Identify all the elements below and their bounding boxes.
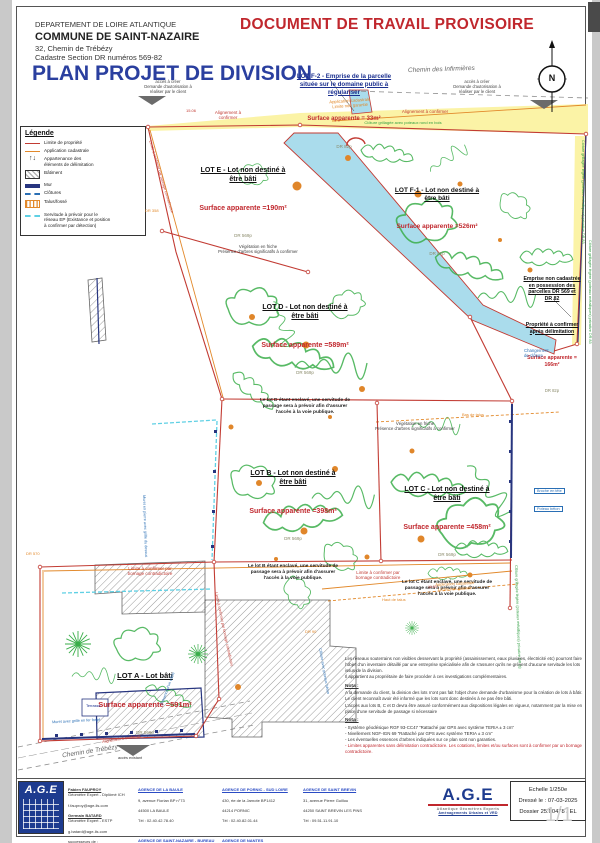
age-logo-large: A.G.E Atlantique Géomètres Experts Aména… [428, 786, 508, 815]
header-department: DEPARTEMENT DE LOIRE ATLANTIQUE [35, 21, 176, 30]
vegetation-note: Végétation en friche Présence d'arbres s… [375, 421, 455, 431]
agency-address: 44500 LA BAULE [138, 808, 218, 813]
emprise-label: Emprise non cadastrée en possession des … [512, 256, 592, 413]
lot-f2-title: LOT F-2 - Emprise de la parcelle située … [269, 73, 419, 96]
legend-item: ↑↓Appartenance des éléments de délimitat… [25, 156, 141, 167]
agency-phone: Tél : 09.51.11.91.10 [303, 818, 383, 823]
limite-bornage-note: Limite à confirmer par bornage contradic… [128, 566, 173, 577]
age-logo-small: A.G.E [18, 781, 64, 834]
limite-bornage-note: Limite à confirmer par bornage contradic… [356, 570, 401, 581]
age-logo-text: A.G.E [19, 784, 63, 796]
expert-note: successeurs de : [68, 839, 136, 843]
legend-item: Mur [25, 182, 141, 188]
agency-address: 430, rte de la Jarnote BP1412 [222, 798, 300, 803]
notes-intro: Les réseaux souterrains non visibles des… [345, 656, 585, 681]
nota1-title: Nota : [345, 684, 585, 691]
legend-label: Limite de propriété [44, 140, 82, 146]
agency-name: AGENCE DE NANTES [222, 838, 300, 843]
legend-item: Bâtiment [25, 170, 141, 179]
changement-cloture-note: Changement de clôture [524, 348, 549, 358]
page-number: 1/1 [545, 804, 573, 828]
lot-d-title: LOT D - Lot non destiné à être bâti [230, 304, 380, 322]
lot-e-label: LOT E - Lot non destiné à être bâti Surf… [168, 147, 318, 259]
nota2-title: Nota : [345, 718, 585, 725]
emprise-subtitle: Propriété à confirmer après délimitation [512, 322, 592, 335]
lot-f1-surface: Surface apparente =526m² [367, 223, 507, 231]
footer-divider [16, 778, 585, 779]
legend-label: Mur [44, 182, 52, 188]
legend-title: Légende [25, 130, 141, 137]
parcel-number: DR 570 [26, 552, 40, 557]
expert-title: Géomètre Expert - ESTP [68, 818, 136, 823]
lot-d-note: Le lot D étant enclavé, une servitude de… [230, 398, 380, 416]
emprise-parcel: DR 82p [512, 388, 592, 393]
agency-address: 44250 SAINT BREVIN LES PINS [303, 808, 383, 813]
application-cadastrale-symbol [25, 151, 40, 152]
expert-email: f.fauproy@age-ils.com [68, 803, 136, 808]
nota1-paragraph: A la demande du client, la division des … [345, 690, 585, 702]
lot-a-title: LOT A - Lot bâti [70, 671, 220, 680]
lot-b-title: LOT B - Lot non destiné à être bâti [218, 470, 368, 488]
alignement-note: Alignement à confirmer [215, 110, 241, 121]
agency-name: AGENCE DE SAINT BREVIN [303, 787, 383, 792]
scale-value: Echelle 1/250e [511, 785, 585, 796]
legend-label: Servitude à prévoir pour le réseau EP (E… [44, 212, 110, 229]
age-logo-subtitle: Aménagements Urbains et VRD [428, 811, 508, 815]
footer-agency-column: AGENCE DE PORNIC - SUD LOIRE 430, rte de… [222, 782, 300, 843]
terrasse-label: Terrasse [86, 704, 101, 708]
talus-fosse-symbol [25, 200, 40, 208]
agency-address: 9, avenue Florian BP n°73 [138, 798, 218, 803]
lot-f1-label: LOT F-1 - Lot non destiné à être bâti Su… [367, 167, 507, 277]
acces-a-creer-note: accès à créer Demande d'autorisation à r… [144, 80, 192, 95]
agency-name: AGENCE DE LA BAULE [138, 787, 218, 792]
legend-label: Clôtures [44, 190, 61, 196]
age-logo-text: A.G.E [428, 786, 508, 803]
legend-item: Application cadastrale [25, 148, 141, 154]
acces-existant-note: accès existant [118, 756, 142, 760]
lot-b-label: LOT B - Lot non destiné à être bâti Surf… [218, 450, 368, 602]
notes-block: Les réseaux souterrains non visibles des… [345, 656, 585, 755]
bas-de-talus-note: Bas de talus [462, 413, 484, 418]
age-logo-rule [428, 804, 508, 806]
clotures-symbol [25, 193, 40, 195]
agency-phone: Tél : 02.40.82.01.44 [222, 818, 300, 823]
header-commune: COMMUNE DE SAINT-NAZAIRE [35, 31, 199, 44]
legend-item: Limite de propriété [25, 140, 141, 146]
batiment-symbol [25, 170, 40, 179]
agency-address: 44214 PORNIC [222, 808, 300, 813]
lot-b-surface: Surface apparente =398m² [218, 508, 368, 517]
lot-c-title: LOT C - Lot non destiné à être bâti [372, 486, 522, 504]
scan-artifact [588, 2, 600, 32]
poteau-beton-tag: Poteau béton [534, 506, 563, 512]
cloture-legere-note: Clôture grillagée légère (poteaux métall… [588, 240, 592, 344]
emprise-title: Emprise non cadastrée en possession des … [512, 276, 592, 302]
lot-c-parcel: DR 569p [372, 552, 522, 558]
lot-f1-title: LOT F-1 - Lot non destiné à être bâti [367, 187, 507, 203]
lot-f1-parcel: DR 82p [367, 251, 507, 257]
parcel-number: DR 90 [305, 630, 316, 635]
expert-title: Géomètre Expert - Diplômé ICH [68, 792, 136, 797]
nota1-paragraph: L'accès aux lots B, C et D devra être as… [345, 703, 585, 715]
footer-agency-column: AGENCE DE LA BAULE 9, avenue Florian BP … [138, 782, 218, 843]
cloture-legere-note: Clôture grillagée légère (poteaux métall… [581, 140, 585, 244]
legend-label: Application cadastrale [44, 148, 89, 154]
nota2-item-warning: - Limites apparentes sans délimitation c… [345, 743, 585, 755]
mur-symbol [25, 184, 40, 188]
dimension-value: 15.06 [186, 109, 196, 114]
page: DEPARTEMENT DE LOIRE ATLANTIQUE COMMUNE … [0, 0, 600, 843]
servitude-ep-symbol [25, 215, 40, 217]
dimension-value: 39.04 [428, 585, 437, 590]
lot-b-parcel: DR 569p [218, 536, 368, 542]
acces-a-creer-note: accès à créer Demande d'autorisation à r… [453, 80, 501, 95]
footer-experts: Fabien FAUPROY Géomètre Expert - Diplômé… [68, 782, 136, 843]
appartenance-arrows-icon: ↑↓ [25, 155, 40, 162]
agency-address: 31, avenue Pierre Guillou [303, 798, 383, 803]
limite-propriete-symbol [25, 143, 40, 144]
north-label: N [549, 73, 556, 84]
legend: Légende Limite de propriété Application … [20, 126, 146, 236]
legend-label: Appartenance des éléments de délimitatio… [44, 156, 94, 167]
agency-phone: Tél : 02.40.42.78.40 [138, 818, 218, 823]
parcel-number: DR 358 [145, 209, 159, 214]
lot-c-label: LOT C - Lot non destiné à être bâti Surf… [372, 466, 522, 618]
lot-b-note: Le lot B étant enclavé, une servitude de… [218, 564, 368, 582]
lot-d-label: LOT D - Lot non destiné à être bâti Surf… [230, 284, 380, 436]
agency-name: AGENCE DE SAINT-NAZAIRE - BUREAU VERT [138, 838, 218, 843]
footer-agency-column: AGENCE DE SAINT BREVIN 31, avenue Pierre… [303, 782, 383, 829]
expert-email: g.batard@age-ils.com [68, 829, 136, 834]
legend-item: Clôtures [25, 190, 141, 196]
legend-item: Servitude à prévoir pour le réseau EP (E… [25, 212, 141, 229]
agency-name: AGENCE DE PORNIC - SUD LOIRE [222, 787, 300, 792]
cloture-bois-note: Clôture grillagée avec poteaux rond en b… [364, 121, 441, 126]
alignement-note: Alignement à confirmer [402, 109, 448, 114]
broche-en-tete-tag: Broche en tête [534, 488, 565, 494]
legend-item: Talus/fossé [25, 199, 141, 208]
legend-label: Talus/fossé [44, 199, 67, 205]
age-logo-map-icon [23, 799, 59, 829]
lot-d-parcel: DR 569p [230, 370, 380, 376]
lot-e-parcel: DR 569p [168, 233, 318, 239]
lot-d-surface: Surface apparente =589m² [230, 342, 380, 351]
lot-e-surface: Surface apparente =190m² [168, 205, 318, 214]
lot-e-title: LOT E - Lot non destiné à être bâti [168, 167, 318, 185]
watermark-title: DOCUMENT DE TRAVAIL PROVISOIRE [240, 16, 534, 34]
vegetation-note: Végétation en friche Présence d'arbres s… [218, 244, 298, 254]
lot-a-parcel: DR 569p [70, 730, 220, 736]
haut-de-talus-note: Haut de talus [382, 598, 406, 603]
legend-label: Bâtiment [44, 170, 62, 176]
lot-c-surface: Surface apparente =458m² [372, 524, 522, 533]
